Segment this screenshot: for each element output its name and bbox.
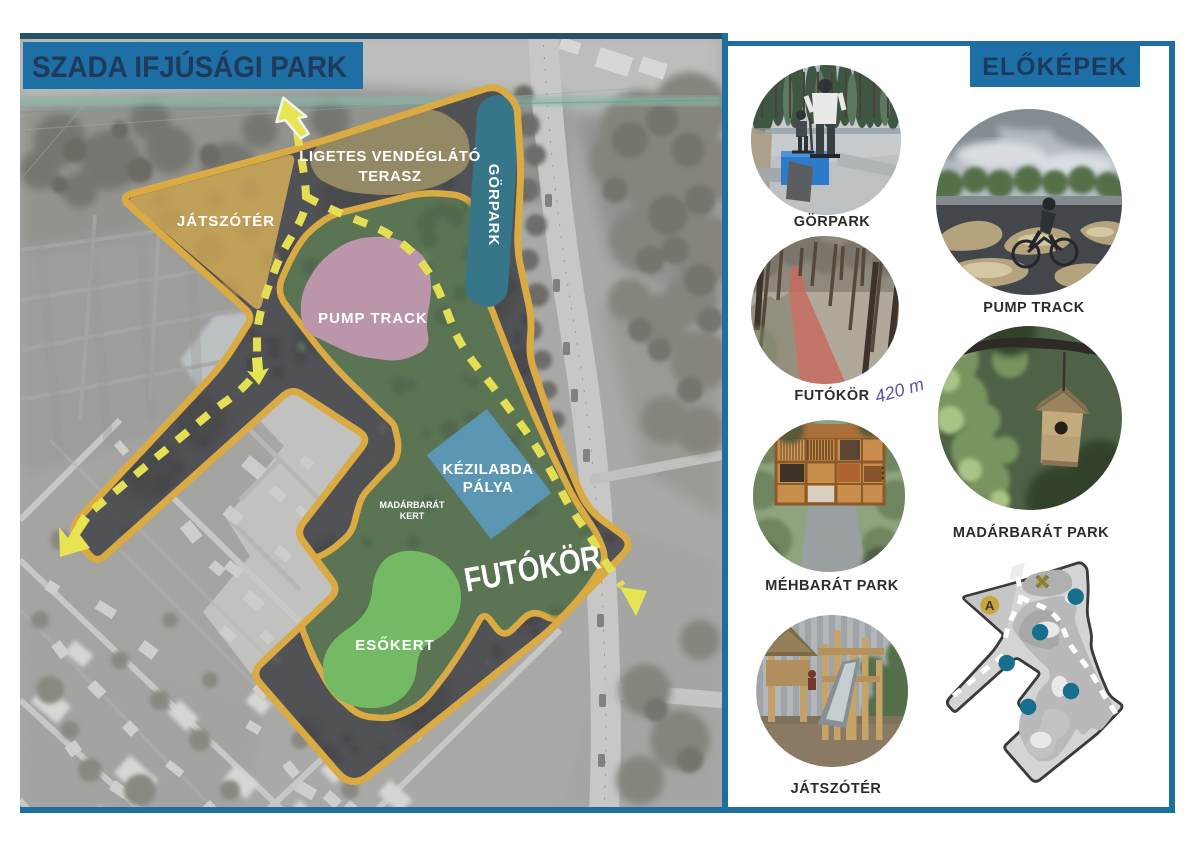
svg-text:FUTÓKÖR: FUTÓKÖR — [794, 386, 869, 404]
svg-text:ESŐKERT: ESŐKERT — [355, 636, 435, 654]
svg-text:420 m: 420 m — [873, 374, 927, 407]
svg-text:PUMP TRACK: PUMP TRACK — [983, 300, 1084, 316]
svg-text:MADÁRBARÁT: MADÁRBARÁT — [380, 500, 445, 510]
svg-text:SZADA IFJÚSÁGI PARK: SZADA IFJÚSÁGI PARK — [32, 50, 347, 84]
svg-text:LIGETES VENDÉGLÁTÓ: LIGETES VENDÉGLÁTÓ — [299, 147, 481, 165]
svg-text:GÖRPARK: GÖRPARK — [485, 164, 502, 247]
svg-text:TERASZ: TERASZ — [359, 168, 422, 185]
svg-text:A: A — [985, 598, 995, 613]
svg-text:JÁTSZÓTÉR: JÁTSZÓTÉR — [177, 212, 275, 230]
svg-text:GÖRPARK: GÖRPARK — [794, 213, 871, 230]
svg-text:ELŐKÉPEK: ELŐKÉPEK — [982, 52, 1128, 81]
svg-text:PUMP TRACK: PUMP TRACK — [318, 310, 428, 327]
svg-text:PÁLYA: PÁLYA — [463, 479, 514, 496]
svg-text:KÉZILABDA: KÉZILABDA — [442, 461, 533, 478]
svg-text:KERT: KERT — [400, 511, 425, 521]
svg-text:MADÁRBARÁT PARK: MADÁRBARÁT PARK — [953, 524, 1109, 541]
svg-text:MÉHBARÁT PARK: MÉHBARÁT PARK — [765, 577, 899, 594]
svg-text:JÁTSZÓTÉR: JÁTSZÓTÉR — [791, 779, 882, 797]
